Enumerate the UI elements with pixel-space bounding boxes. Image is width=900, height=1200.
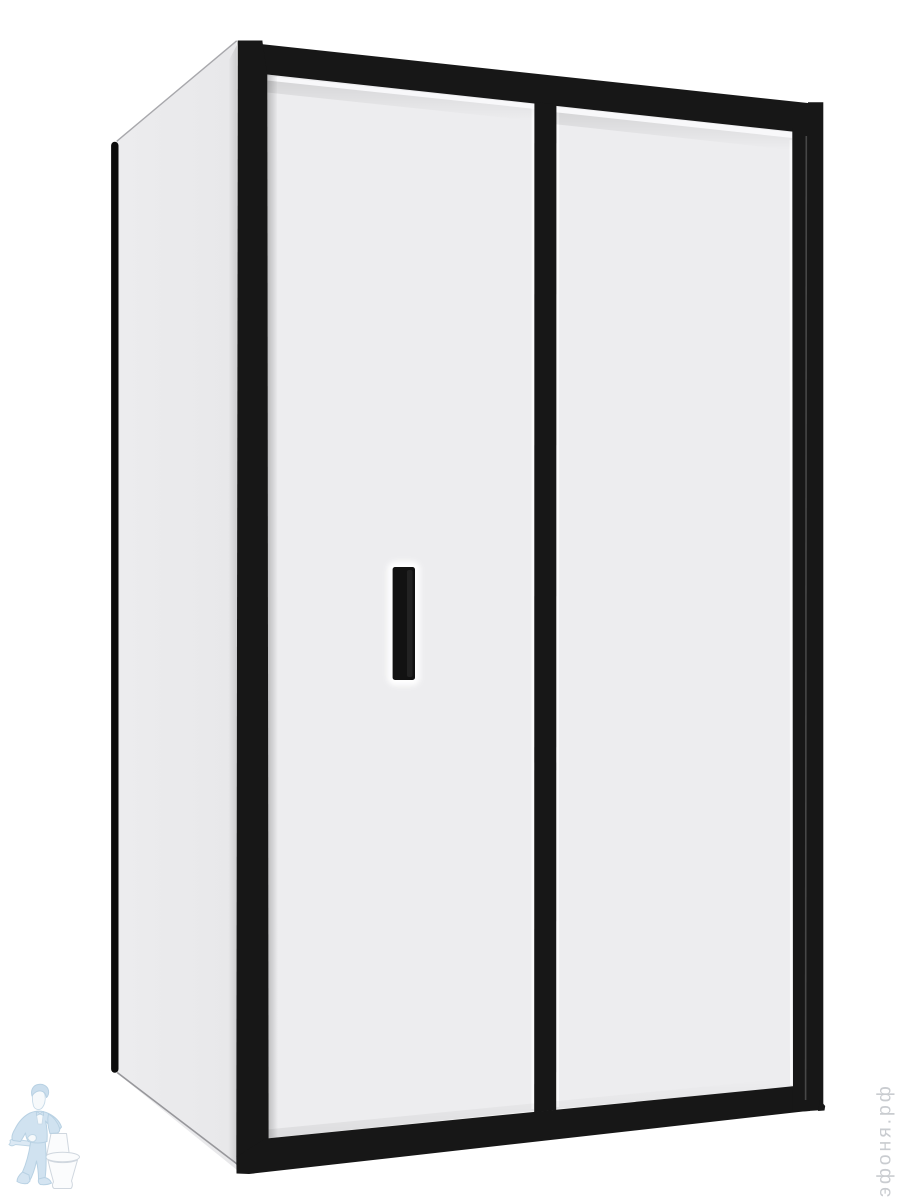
svg-text:эфоня.рф: эфоня.рф — [874, 1083, 896, 1197]
